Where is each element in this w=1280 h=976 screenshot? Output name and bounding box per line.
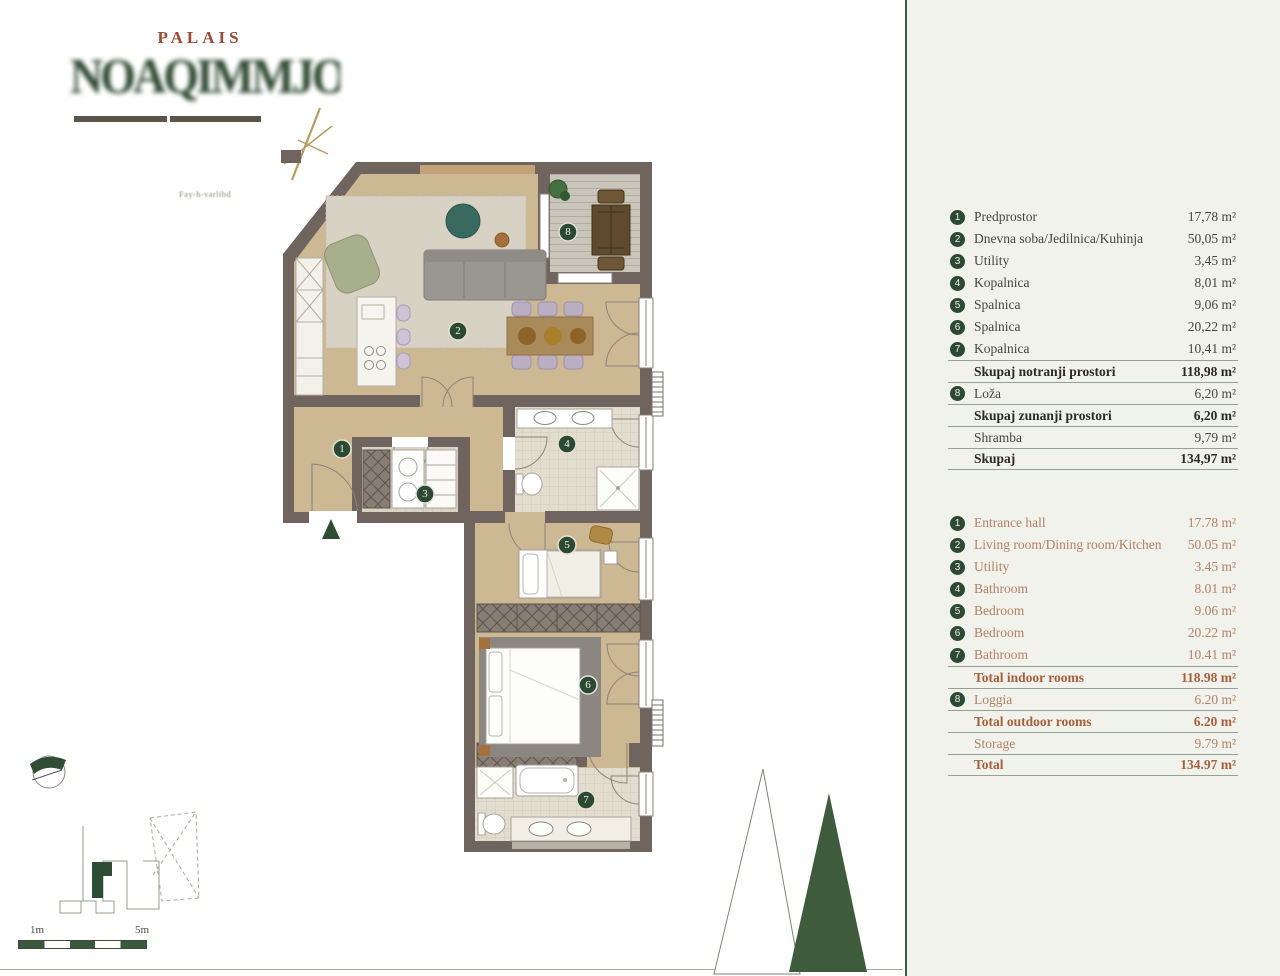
room-label: Entrance hall [974,515,1188,531]
scale-label-1m: 1m [30,924,44,936]
tree-filled [789,793,867,972]
room-area-value: 134,97 m² [1180,451,1236,467]
room-label: Spalnica [974,297,1194,313]
svg-text:8: 8 [565,226,571,238]
room-number-badge: 2 [950,232,965,247]
svg-text:3: 3 [422,488,428,500]
room-label: Bedroom [974,603,1194,619]
room-label: Total outdoor rooms [974,714,1194,730]
svg-text:1: 1 [339,443,345,455]
legend-row: Total outdoor rooms6.20 m² [948,710,1238,732]
room-label: Skupaj [974,451,1180,467]
room-label: Kopalnica [974,275,1194,291]
scale-bar: 1m 5m [18,924,147,950]
room-number-badge: 8 [950,692,965,707]
legend-row: 1Entrance hall17.78 m² [948,512,1238,534]
room-number-badge: 3 [950,560,965,575]
legend-table-english: 1Entrance hall17.78 m²2Living room/Dinin… [948,512,1238,776]
room-label: Living room/Dining room/Kitchen [974,537,1188,553]
legend-row: 6Spalnica20,22 m² [948,316,1238,338]
room-number-badge: 8 [950,386,965,401]
room-number-badge: 5 [950,604,965,619]
room-label: Kopalnica [974,341,1188,357]
room-label: Loggia [974,692,1194,708]
logo-baseline-left [74,116,167,122]
room-area-value: 118,98 m² [1181,364,1236,380]
room-area-value: 20.22 m² [1188,625,1236,641]
room-number-badge: 1 [950,516,965,531]
room-area-value: 134.97 m² [1180,757,1236,773]
logo-caption: Fay-h-varlibd [163,189,247,199]
room-area-value: 6,20 m² [1194,386,1236,402]
room-area-value: 9.06 m² [1194,603,1236,619]
badge-4: 4 [558,435,576,453]
floor-plan: 1 2 3 4 5 6 7 8 [250,140,680,870]
trees-graphic [700,758,880,976]
room-area-value: 9,06 m² [1194,297,1236,313]
room-area-value: 8.01 m² [1194,581,1236,597]
room-label: Skupaj zunanji prostori [974,408,1194,424]
room-area-value: 50.05 m² [1188,537,1236,553]
floorplan-page: { "brand": { "title": "PALAIS", "logo_ar… [0,0,1280,976]
legend-row: 8Loža6,20 m² [948,382,1238,404]
svg-text:6: 6 [585,679,591,691]
room-number-badge: 2 [950,538,965,553]
scale-bar-graphic [18,940,147,949]
north-compass-icon [22,750,82,800]
legend-row: Shramba9,79 m² [948,426,1238,448]
legend-row: 3Utility3,45 m² [948,250,1238,272]
room-label: Loža [974,386,1194,402]
room-number-badge: 4 [950,276,965,291]
legend-row: 4Bathroom8.01 m² [948,578,1238,600]
room-area-value: 9,79 m² [1194,430,1236,446]
room-label: Total [974,757,1180,773]
room-area-value: 6.20 m² [1194,714,1236,730]
room-area-value: 20,22 m² [1188,319,1236,335]
room-label: Utility [974,253,1194,269]
badge-8: 8 [559,223,577,241]
room-label: Total indoor rooms [974,670,1181,686]
badge-7: 7 [577,791,595,809]
room-area-value: 50,05 m² [1188,231,1236,247]
legend-row: 1Predprostor17,78 m² [948,206,1238,228]
room-number-badge: 1 [950,210,965,225]
tree-outline [714,769,800,974]
svg-text:5: 5 [564,539,570,551]
scale-label-5m: 5m [135,924,149,936]
room-area-value: 10.41 m² [1188,647,1236,663]
logo-baseline-right [170,116,261,122]
room-number-badge: 5 [950,298,965,313]
badge-2: 2 [449,322,467,340]
svg-text:4: 4 [564,438,570,450]
room-number-badge: 6 [950,320,965,335]
site-plan [50,805,215,920]
room-label: Dnevna soba/Jedilnica/Kuhinja [974,231,1188,247]
badge-1: 1 [333,440,351,458]
legend-row: 7Bathroom10.41 m² [948,644,1238,666]
svg-text:7: 7 [583,794,589,806]
room-number-badge: 7 [950,342,965,357]
legend-row: Total indoor rooms118.98 m² [948,666,1238,688]
brand-title: PALAIS [120,28,280,48]
legend-row: 5Spalnica9,06 m² [948,294,1238,316]
room-label: Predprostor [974,209,1188,225]
room-area-value: 8,01 m² [1194,275,1236,291]
room-area-value: 6,20 m² [1194,408,1236,424]
legend-row: 5Bedroom9.06 m² [948,600,1238,622]
room-area-value: 10,41 m² [1188,341,1236,357]
room-label: Utility [974,559,1194,575]
room-label: Spalnica [974,319,1188,335]
info-panel [905,0,1280,976]
legend-table-slovenian: 1Predprostor17,78 m²2Dnevna soba/Jedilni… [948,206,1238,470]
room-number-badge: 3 [950,254,965,269]
legend-row: 3Utility3.45 m² [948,556,1238,578]
room-area-value: 118.98 m² [1181,670,1236,686]
legend-row: Skupaj zunanji prostori6,20 m² [948,404,1238,426]
room-number-badge: 4 [950,582,965,597]
room-area-value: 6.20 m² [1194,692,1236,708]
legend-row: 4Kopalnica8,01 m² [948,272,1238,294]
room-label: Shramba [974,430,1194,446]
legend-row: Total134.97 m² [948,754,1238,776]
bedroom6-furniture [479,637,601,757]
legend-row: 2Dnevna soba/Jedilnica/Kuhinja50,05 m² [948,228,1238,250]
room-area-value: 17.78 m² [1188,515,1236,531]
legend-row: Skupaj notranji prostori118,98 m² [948,360,1238,382]
room-area-value: 3.45 m² [1194,559,1236,575]
room-label: Bedroom [974,625,1188,641]
room-area-value: 17,78 m² [1188,209,1236,225]
legend-row: Skupaj134,97 m² [948,448,1238,470]
room-label: Storage [974,736,1194,752]
badge-3: 3 [416,485,434,503]
svg-text:2: 2 [455,325,461,337]
room-number-badge: 7 [950,648,965,663]
legend-row: 6Bedroom20.22 m² [948,622,1238,644]
room-area-value: 9.79 m² [1194,736,1236,752]
legend-row: Storage9.79 m² [948,732,1238,754]
room-number-badge: 6 [950,626,965,641]
utility-fixtures [363,450,456,508]
room-label: Skupaj notranji prostori [974,364,1181,380]
legend-row: 7Kopalnica10,41 m² [948,338,1238,360]
room-label: Bathroom [974,581,1194,597]
legend-row: 8Loggia6.20 m² [948,688,1238,710]
legend-row: 2Living room/Dining room/Kitchen50.05 m² [948,534,1238,556]
room-area-value: 3,45 m² [1194,253,1236,269]
room-label: Bathroom [974,647,1188,663]
badge-5: 5 [558,536,576,554]
badge-6: 6 [579,676,597,694]
